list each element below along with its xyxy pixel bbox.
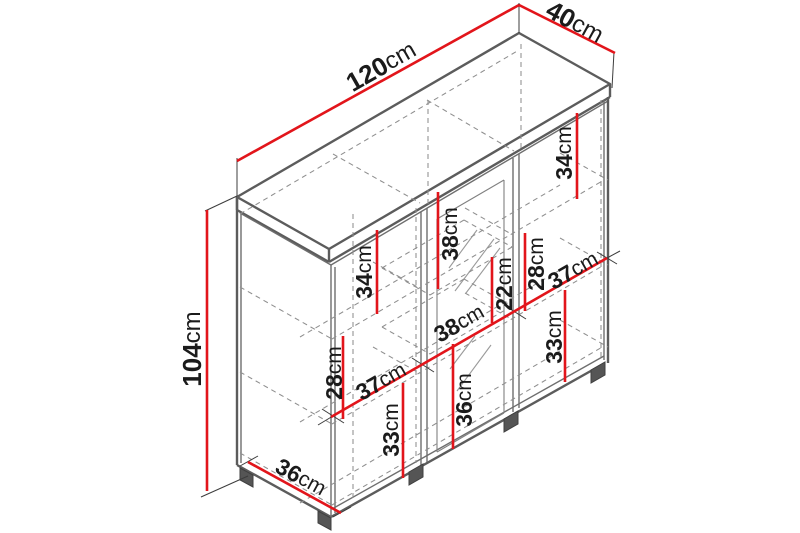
label-shelf-width-mid-38: 38cm xyxy=(429,298,488,347)
label-right-gap-top-34: 34cm xyxy=(551,126,577,180)
door-divider-left xyxy=(421,208,427,466)
label-left-gap-top-34: 34cm xyxy=(351,245,377,299)
label-left-gap-bottom-33: 33cm xyxy=(378,403,404,457)
label-depth-40: 40cm xyxy=(541,0,609,50)
label-mid-gap-bottom-36: 36cm xyxy=(451,373,477,427)
furniture-dimension-diagram: 120cm 40cm 104cm 34cm 38cm 22cm 28cm 34c… xyxy=(0,0,800,533)
cabinet-feet xyxy=(240,362,605,530)
label-right-gap-mid-28: 28cm xyxy=(523,237,549,291)
label-mid-gap-shelf-22: 22cm xyxy=(491,257,517,311)
cabinet-isometric-drawing: 120cm 40cm 104cm 34cm 38cm 22cm 28cm 34c… xyxy=(0,0,800,533)
label-bottom-depth-36: 36cm xyxy=(271,453,331,501)
label-shelf-width-right-37: 37cm xyxy=(543,245,602,294)
label-height-104: 104cm xyxy=(177,311,207,386)
label-left-gap-mid-28: 28cm xyxy=(321,346,347,400)
label-right-gap-bottom-33: 33cm xyxy=(541,310,567,364)
label-mid-gap-top-38: 38cm xyxy=(437,207,463,261)
